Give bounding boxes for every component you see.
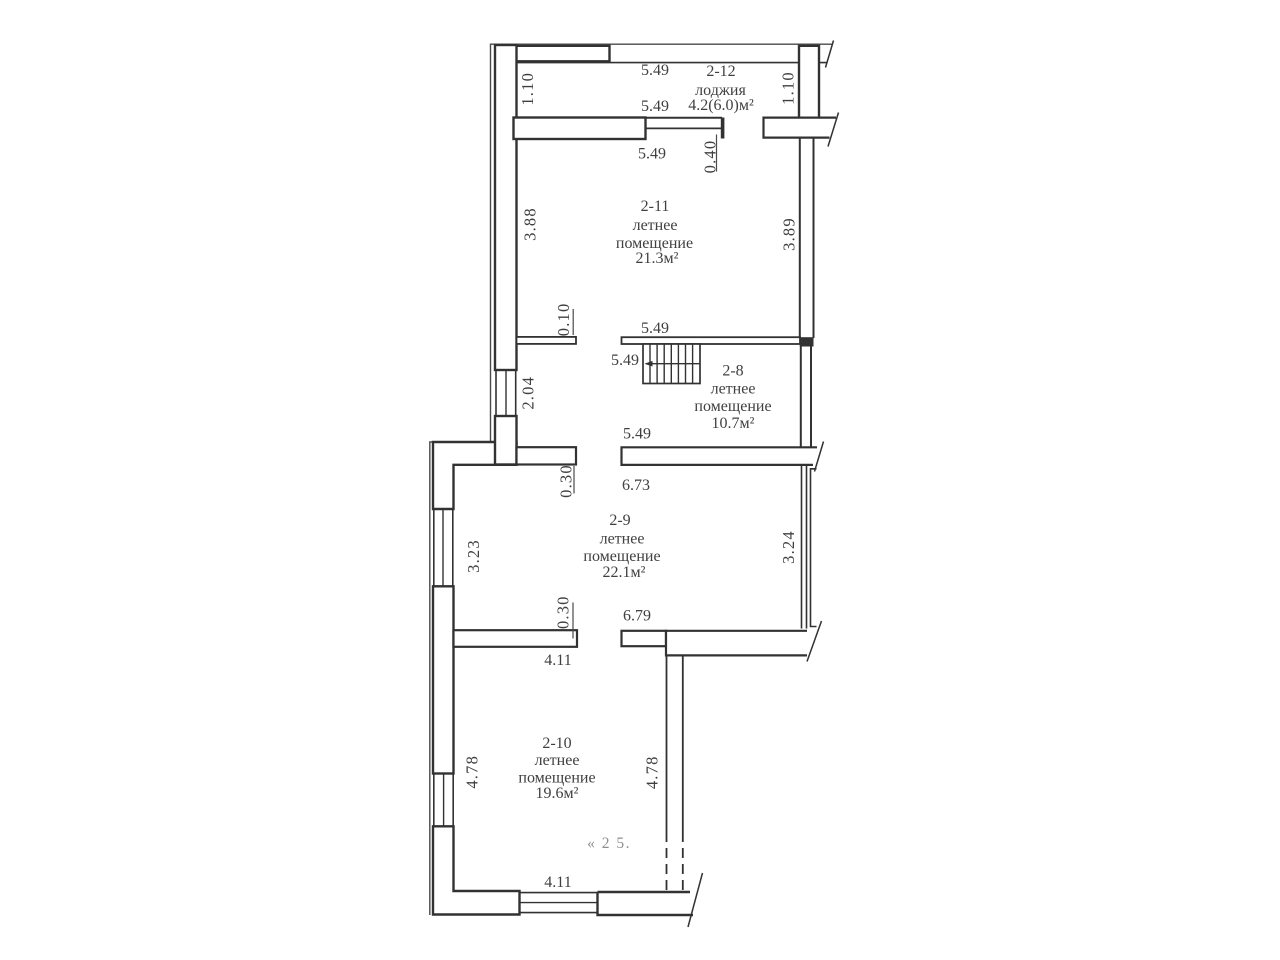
svg-text:1.10: 1.10 bbox=[778, 71, 797, 105]
svg-text:помещение: помещение bbox=[694, 398, 771, 415]
svg-text:5.49: 5.49 bbox=[641, 62, 669, 79]
svg-text:6.79: 6.79 bbox=[623, 608, 651, 625]
svg-text:19.6м²: 19.6м² bbox=[536, 785, 579, 802]
svg-text:4.78: 4.78 bbox=[463, 755, 482, 789]
svg-text:21.3м²: 21.3м² bbox=[636, 250, 679, 267]
svg-text:« 2 5.: « 2 5. bbox=[587, 835, 631, 852]
svg-text:4.78: 4.78 bbox=[643, 755, 662, 789]
svg-text:летнее: летнее bbox=[711, 381, 756, 398]
svg-text:0.30: 0.30 bbox=[557, 464, 576, 498]
svg-text:3.24: 3.24 bbox=[779, 530, 798, 564]
svg-text:2-8: 2-8 bbox=[722, 363, 743, 380]
svg-text:22.1м²: 22.1м² bbox=[603, 564, 646, 581]
svg-text:3.89: 3.89 bbox=[780, 217, 799, 251]
svg-text:5.49: 5.49 bbox=[623, 426, 651, 443]
svg-text:5.49: 5.49 bbox=[641, 320, 669, 337]
svg-text:2-12: 2-12 bbox=[706, 63, 735, 80]
svg-text:помещение: помещение bbox=[583, 548, 660, 565]
svg-text:4.2(6.0)м²: 4.2(6.0)м² bbox=[688, 97, 754, 114]
svg-text:4.11: 4.11 bbox=[544, 652, 571, 669]
svg-text:2.04: 2.04 bbox=[519, 376, 538, 410]
svg-text:10.7м²: 10.7м² bbox=[712, 415, 755, 432]
svg-text:помещение: помещение bbox=[518, 770, 595, 787]
svg-text:2-10: 2-10 bbox=[542, 735, 571, 752]
svg-text:5.49: 5.49 bbox=[611, 352, 639, 369]
svg-text:6.73: 6.73 bbox=[622, 477, 650, 494]
svg-text:0.10: 0.10 bbox=[554, 303, 573, 337]
svg-text:летнее: летнее bbox=[633, 217, 678, 234]
svg-text:0.30: 0.30 bbox=[553, 595, 572, 629]
svg-text:4.11: 4.11 bbox=[544, 874, 571, 891]
svg-text:2-11: 2-11 bbox=[641, 198, 670, 215]
svg-text:5.49: 5.49 bbox=[641, 98, 669, 115]
svg-text:летнее: летнее bbox=[600, 531, 645, 548]
svg-text:3.88: 3.88 bbox=[520, 207, 539, 241]
svg-text:1.10: 1.10 bbox=[518, 72, 537, 106]
svg-text:2-9: 2-9 bbox=[609, 512, 630, 529]
svg-text:3.23: 3.23 bbox=[464, 539, 483, 573]
svg-text:летнее: летнее bbox=[535, 752, 580, 769]
svg-text:5.49: 5.49 bbox=[638, 146, 666, 163]
